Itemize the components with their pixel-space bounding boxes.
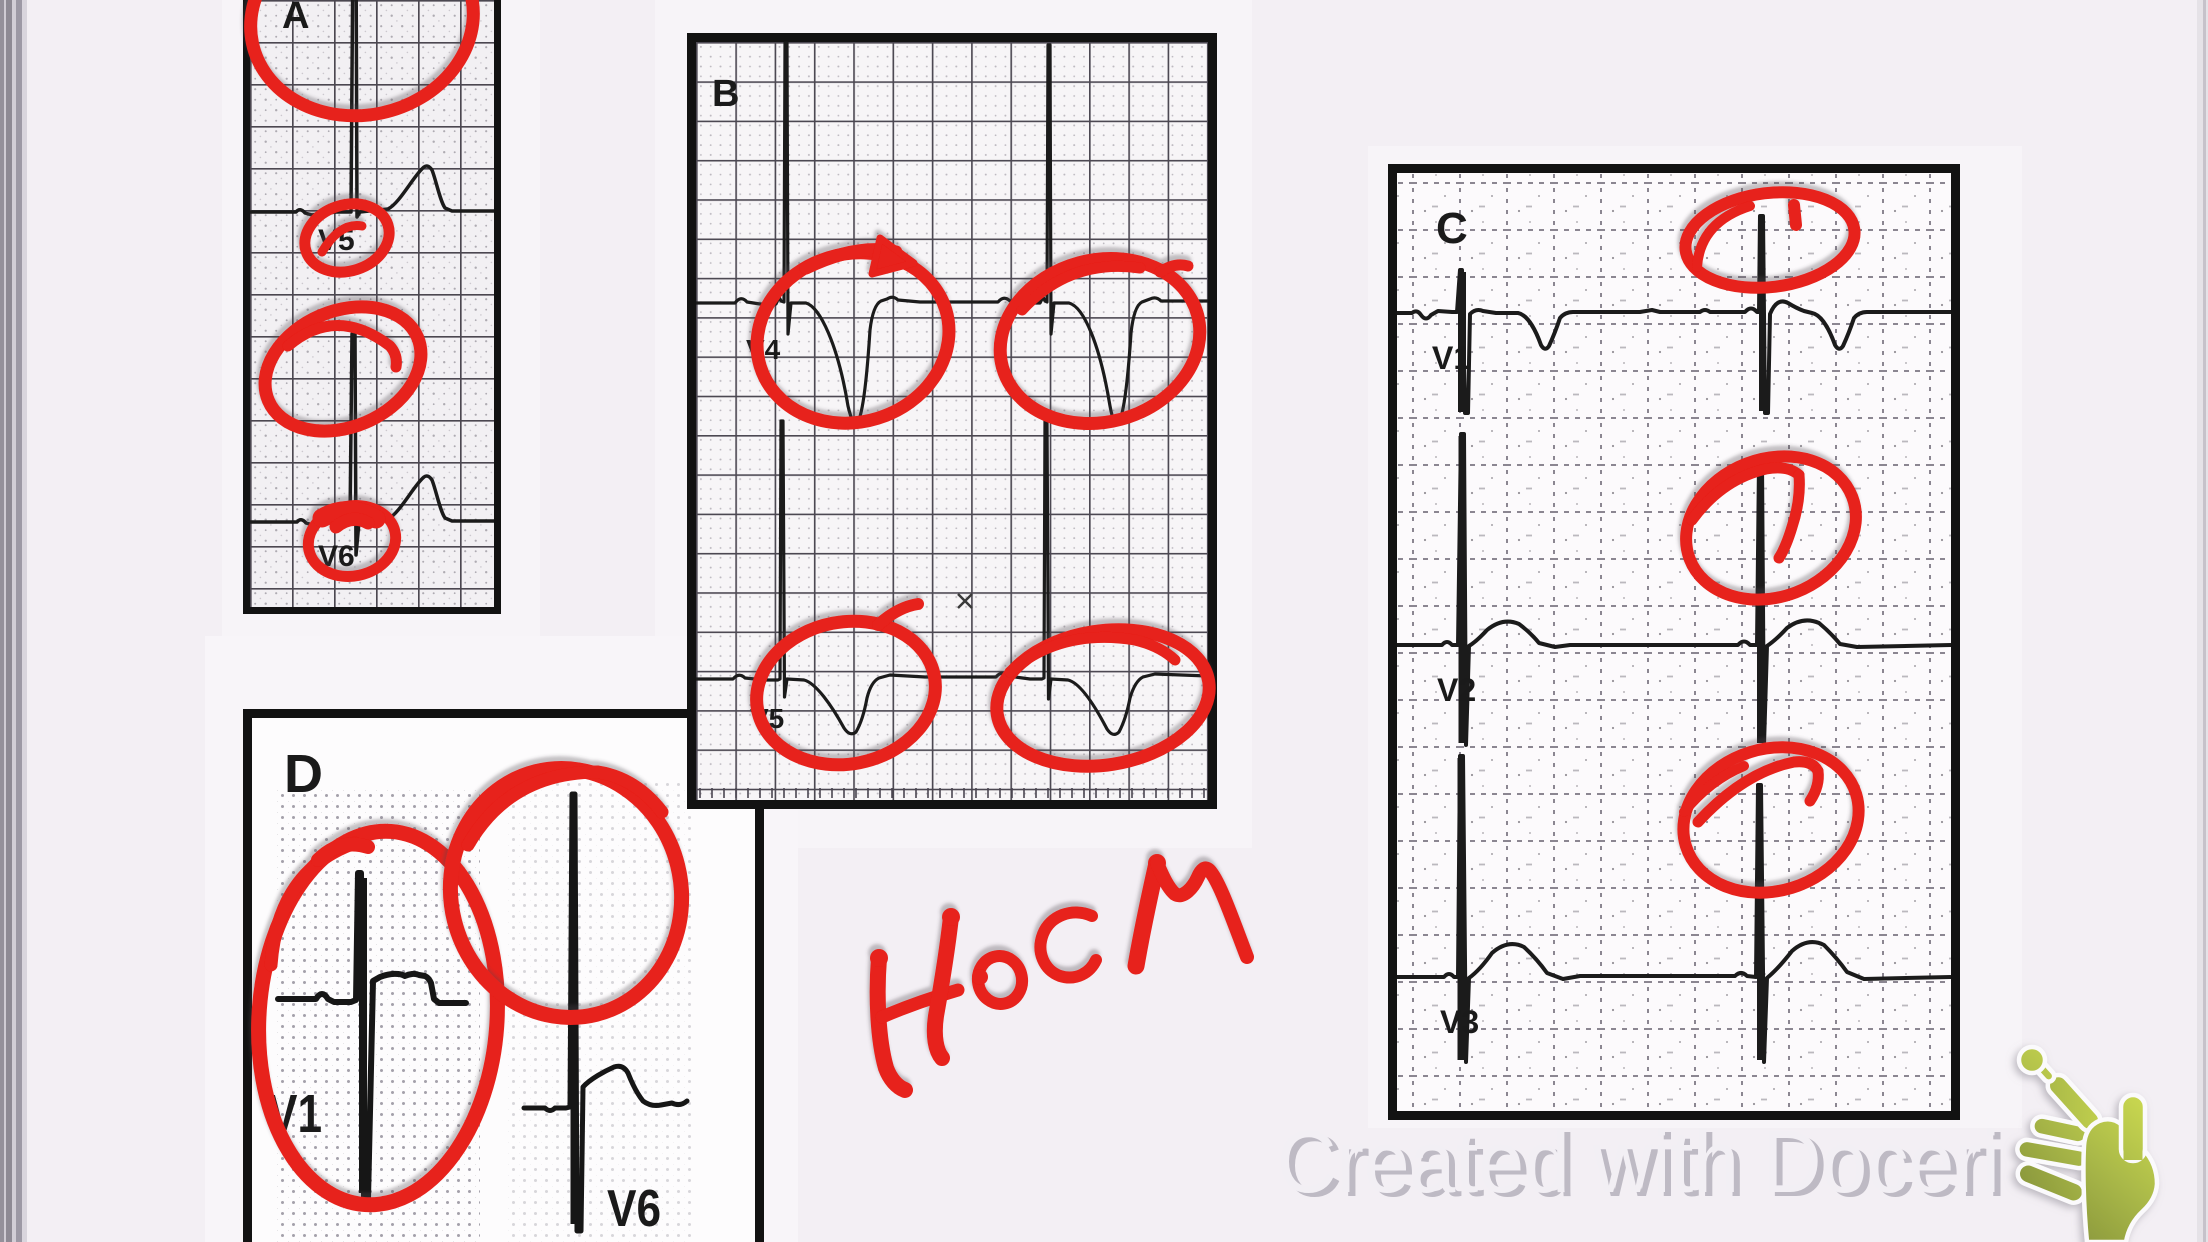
svg-text:A: A — [282, 0, 309, 37]
svg-text:D: D — [284, 744, 323, 804]
svg-text:V6: V6 — [607, 1180, 661, 1238]
svg-text:C: C — [1436, 204, 1468, 253]
svg-text:V1: V1 — [1432, 340, 1471, 376]
svg-text:B: B — [712, 73, 739, 115]
svg-text:Created with Doceri: Created with Doceri — [1277, 1112, 2000, 1211]
svg-text:V2: V2 — [1437, 672, 1476, 708]
svg-text:V3: V3 — [1440, 1004, 1479, 1040]
